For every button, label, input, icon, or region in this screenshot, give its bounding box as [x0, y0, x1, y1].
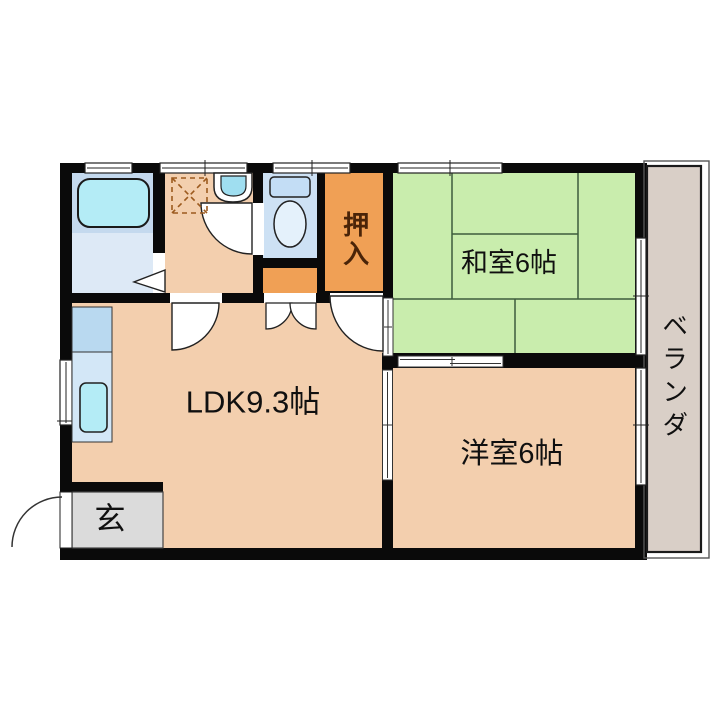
- washbasin-bowl: [221, 176, 246, 196]
- room-label-washitsu: 和室6帖: [461, 249, 557, 277]
- room-label-veranda: ベランダ: [659, 312, 686, 444]
- bathtub-icon: [78, 179, 149, 227]
- room-label-ldk: LDK9.3帖: [186, 387, 320, 420]
- toilet-icon: [274, 201, 306, 247]
- floorplan-canvas: [0, 0, 720, 720]
- door-opening: [264, 293, 316, 303]
- toilet-tank: [270, 177, 310, 197]
- entrance-door-arc-icon: [12, 497, 62, 547]
- door-opening: [60, 492, 72, 548]
- room-label-oshiire: 押入: [340, 211, 367, 269]
- door-opening: [170, 293, 222, 303]
- toilet-side-closet: [263, 268, 317, 293]
- kitchen-counter-upper: [72, 307, 112, 352]
- sliding-door-icon: [398, 356, 503, 367]
- genkan-wall: [72, 482, 163, 492]
- door-opening: [252, 203, 264, 255]
- floorplan-page: 押入 和室6帖 LDK9.3帖 洋室6帖 ベランダ 玄: [0, 0, 720, 720]
- room-label-genkan: 玄: [95, 504, 126, 537]
- kitchen-sink-icon: [80, 383, 107, 432]
- room-label-youshitsu: 洋室6帖: [460, 439, 563, 469]
